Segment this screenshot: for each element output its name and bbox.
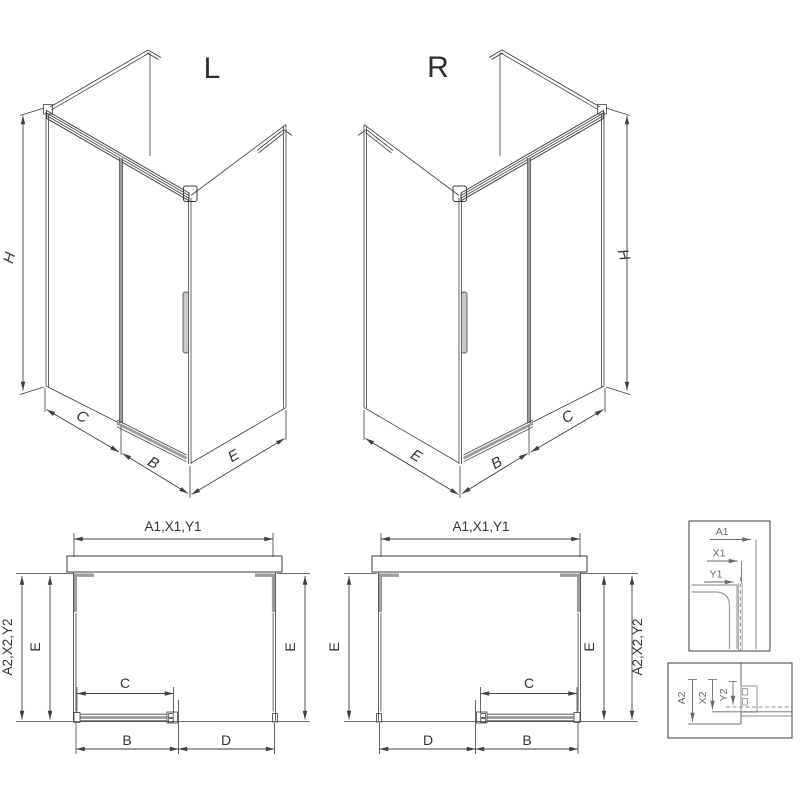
dim-label-h-left: H xyxy=(0,250,19,265)
detail-label-y1: Y1 xyxy=(710,569,723,581)
dim-label-a2x2y2-left: A2,X2,Y2 xyxy=(0,618,15,675)
dim-label-b-plan-right: B xyxy=(522,732,531,748)
technical-drawing-page: L H C B E R H C B E A1,X1,Y1 A2,X2,Y2 E … xyxy=(0,0,800,800)
detail-label-a2: A2 xyxy=(676,691,688,704)
dim-label-c-plan-left: C xyxy=(120,675,130,691)
plan-view-left: A1,X1,Y1 A2,X2,Y2 E E C B D xyxy=(0,519,310,754)
dim-label-e-inner-right-2: E xyxy=(581,642,597,651)
detail-label-x1: X1 xyxy=(713,548,726,560)
dim-label-a1x1y1-right: A1,X1,Y1 xyxy=(452,519,509,534)
dim-label-e-inner-right-1: E xyxy=(326,642,342,651)
variant-label-left: L xyxy=(204,52,221,85)
detail-label-y2: Y2 xyxy=(718,688,730,701)
detail-label-x2: X2 xyxy=(697,691,709,704)
detail-label-a1: A1 xyxy=(716,526,729,538)
iso-view-right: R H C B E xyxy=(358,50,633,498)
detail-view-top-profile: A1 X1 Y1 xyxy=(689,521,770,651)
dim-label-b-left: B xyxy=(145,453,162,473)
dim-label-h-right: H xyxy=(614,247,633,262)
dim-label-e-inner-left-1: E xyxy=(27,642,43,651)
dim-label-b-right: B xyxy=(488,453,505,473)
dim-label-e-right: E xyxy=(408,446,426,466)
iso-view-left: L H C B E xyxy=(0,50,292,498)
dim-label-a1x1y1-left: A1,X1,Y1 xyxy=(144,519,201,534)
detail-view-bottom-rail: A2 X2 Y2 xyxy=(668,663,792,738)
dim-label-b-plan-left: B xyxy=(122,732,131,748)
dim-label-c-left: C xyxy=(73,407,91,427)
variant-label-right: R xyxy=(427,51,449,84)
dim-label-a2x2y2-right: A2,X2,Y2 xyxy=(630,618,645,675)
dim-label-c-plan-right: C xyxy=(524,675,534,691)
shower-enclosure-technical-drawing: L H C B E R H C B E A1,X1,Y1 A2,X2,Y2 E … xyxy=(0,0,800,800)
dim-label-c-right: C xyxy=(559,407,577,427)
plan-view-right: A1,X1,Y1 A2,X2,Y2 E E C B D xyxy=(326,519,645,754)
dim-label-d-plan-right: D xyxy=(423,732,433,748)
dim-label-e-left: E xyxy=(225,446,243,466)
dim-label-d-plan-left: D xyxy=(221,732,231,748)
dim-label-e-inner-left-2: E xyxy=(282,642,298,651)
